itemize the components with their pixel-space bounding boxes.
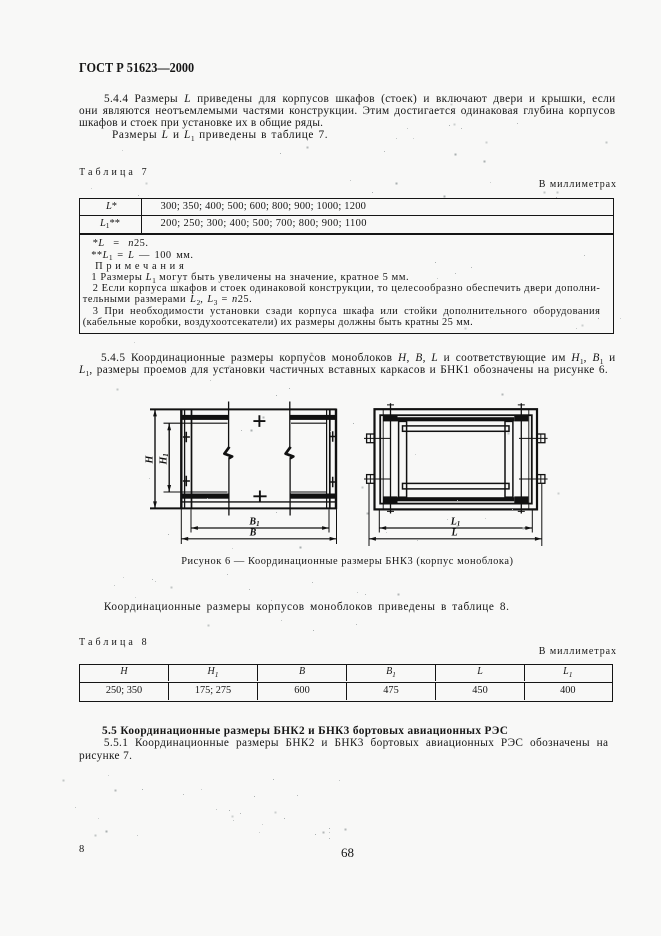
svg-text:H1: H1 [159,453,171,465]
svg-text:L1: L1 [450,517,461,529]
svg-text:H: H [145,455,156,465]
svg-text:В: В [249,528,257,539]
svg-text:L: L [450,528,457,539]
svg-text:В1: В1 [248,517,259,529]
